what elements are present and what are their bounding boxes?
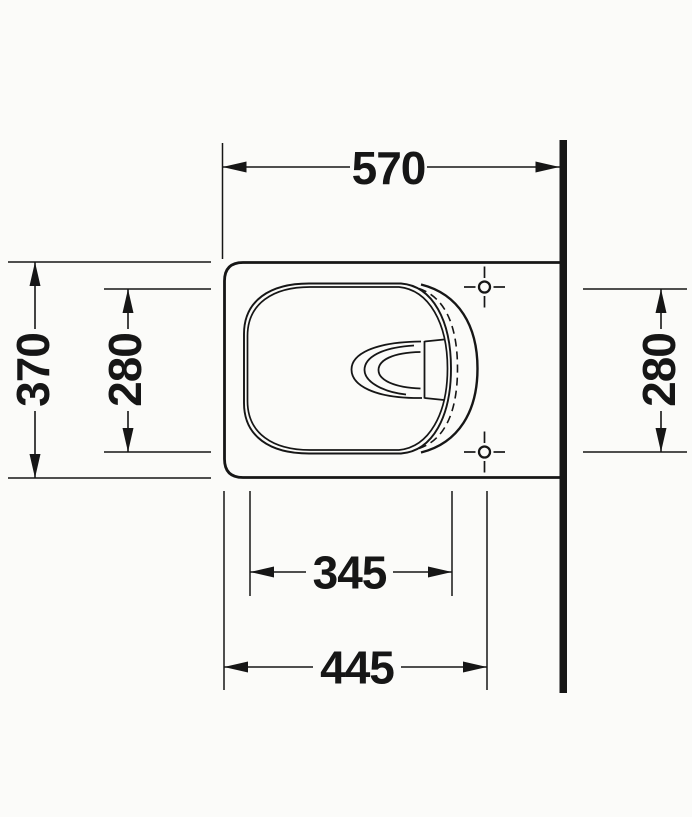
dimension-label: 280 xyxy=(99,333,151,407)
drain-arc-inner xyxy=(379,352,421,389)
dimension-label: 280 xyxy=(633,333,685,407)
bowl-back-bulge-line xyxy=(421,285,478,453)
toilet-outer-outline xyxy=(225,263,560,478)
arrowhead-left xyxy=(250,567,274,578)
drain-tick-top xyxy=(425,340,445,342)
dimension-label: 445 xyxy=(320,642,394,694)
arrowhead-down xyxy=(656,428,667,452)
dimension-label: 370 xyxy=(7,333,59,407)
dimension-label: 570 xyxy=(352,142,426,194)
drain-contours xyxy=(352,340,445,401)
dimension-280-inner-width: 280 xyxy=(99,289,211,452)
technical-drawing-canvas: 570 370 280 xyxy=(0,0,692,817)
dimension-label: 345 xyxy=(313,547,387,599)
arrowhead-up xyxy=(656,289,667,313)
arrowhead-right xyxy=(463,662,487,673)
arrowhead-left xyxy=(224,662,248,673)
toilet-dimension-diagram: 570 370 280 xyxy=(0,0,692,817)
dimension-345-inner-length: 345 xyxy=(250,491,452,599)
arrowhead-up xyxy=(30,262,41,286)
toilet-body xyxy=(225,263,560,478)
bowl-rim-inner-line xyxy=(248,287,448,450)
bowl-rim-outer-line xyxy=(244,284,451,454)
dimension-570-overall-depth: 570 xyxy=(223,142,560,259)
mounting-hole-icon xyxy=(479,282,490,293)
mounting-point-bottom xyxy=(464,432,505,473)
mounting-point-top xyxy=(464,267,505,308)
drain-tick-bottom xyxy=(425,398,445,400)
arrowhead-down xyxy=(123,428,134,452)
arrowhead-left xyxy=(223,162,247,173)
wall-line xyxy=(560,140,568,693)
arrowhead-up xyxy=(123,289,134,313)
dimension-280-hole-spacing: 280 xyxy=(583,289,687,452)
arrowhead-right xyxy=(536,162,560,173)
arrowhead-down xyxy=(30,454,41,478)
arrowhead-right xyxy=(428,567,452,578)
mounting-hole-icon xyxy=(479,447,490,458)
